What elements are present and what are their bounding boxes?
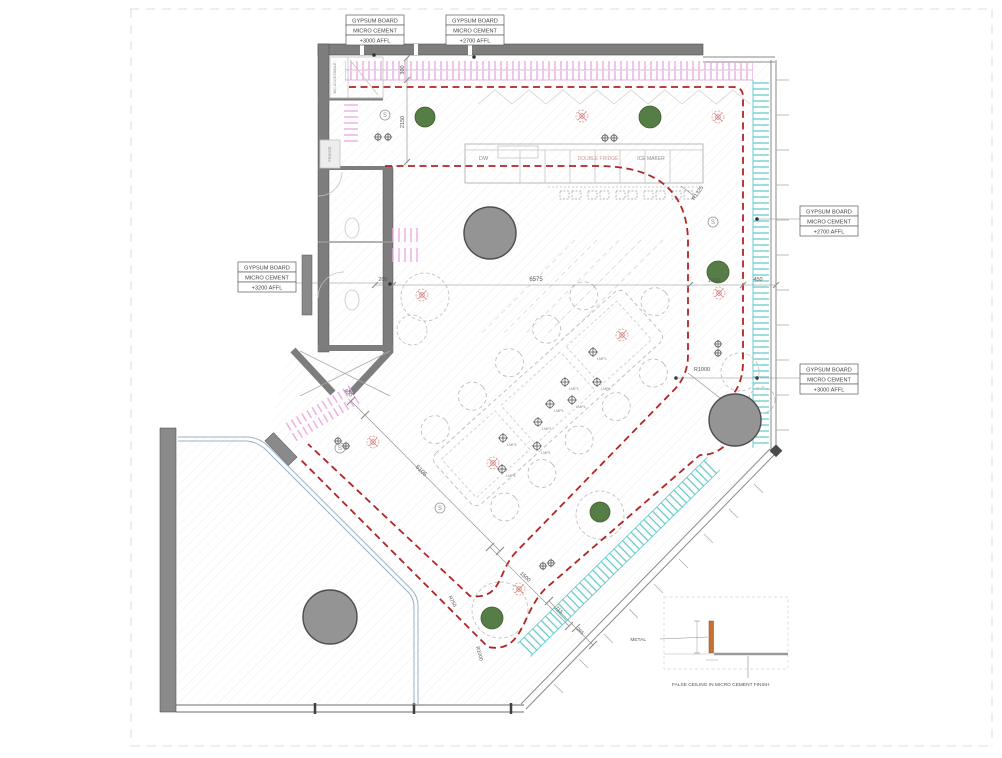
radius-column: R1000: [694, 367, 710, 373]
label-line: GYPSUM BOARD: [806, 210, 852, 216]
label-line: MICRO CEMENT: [245, 276, 289, 282]
label-line: GYPSUM BOARD: [244, 266, 290, 272]
cyan-batten-band-right: [753, 80, 769, 448]
equip-ice-maker: ICE MAKER: [637, 156, 665, 162]
equip-double-fridge: DOUBLE FRIDGE: [578, 156, 620, 162]
floor-plan-canvas: WC ACCESSIBLE FRIDGE: [0, 0, 1002, 758]
lamp-tag: LMP1: [597, 357, 607, 361]
s-symbol: S: [383, 113, 387, 119]
dim-300: 300: [400, 65, 406, 74]
label-line: GYPSUM BOARD: [806, 368, 852, 374]
dim-2150: 2150: [400, 116, 406, 128]
lamp-tag: LMP1: [542, 427, 552, 431]
detail-metal-label: METAL: [630, 637, 646, 643]
label-line: +3000 AFFL: [814, 388, 845, 394]
label-line: GYPSUM BOARD: [352, 19, 398, 25]
label-line: MICRO CEMENT: [353, 29, 397, 35]
lamp-tag: LMP1: [576, 405, 586, 409]
ceiling-plan-sheet: WC ACCESSIBLE FRIDGE: [0, 0, 1002, 758]
ceiling-detail-callout: METAL FALSE CEILING IN MICRO CEMENT FINI…: [630, 597, 788, 688]
label-line: GYPSUM BOARD: [452, 19, 498, 25]
equip-dw: DW: [479, 156, 489, 162]
lamp-tag: LMP1: [569, 387, 579, 391]
lamp-tag: LMP1: [506, 474, 516, 478]
label-line: +3200 AFFL: [252, 286, 283, 292]
label-line: +2700 AFFL: [814, 230, 845, 236]
label-line: MICRO CEMENT: [453, 29, 497, 35]
label-line: +2700 AFFL: [460, 39, 491, 45]
dim-1600: 1600: [708, 278, 720, 284]
metal-profile: [709, 621, 714, 653]
detail-caption: FALSE CEILING IN MICRO CEMENT FINISH: [672, 682, 770, 688]
s-symbol: S: [338, 446, 342, 452]
room-label-fridge: FRIDGE: [327, 146, 332, 161]
dim-450: 450: [753, 277, 762, 283]
lamp-tag: LMP1: [507, 443, 517, 447]
s-symbol: S: [711, 220, 715, 226]
label-line: MICRO CEMENT: [807, 378, 851, 384]
label-line: MICRO CEMENT: [807, 220, 851, 226]
room-label-store: WC ACCESSIBLE: [333, 62, 337, 93]
lamp-tag: LMP1: [601, 387, 611, 391]
ceiling-label-right-lower: GYPSUM BOARD MICRO CEMENT +3000 AFFL: [760, 364, 858, 394]
label-line: +3000 AFFL: [360, 39, 391, 45]
lamp-tag: LMP1: [554, 409, 564, 413]
dim-6575: 6575: [529, 277, 543, 283]
dim-200: 200: [378, 277, 387, 283]
s-symbol: S: [438, 506, 442, 512]
lamp-tag: LMP1: [541, 451, 551, 455]
